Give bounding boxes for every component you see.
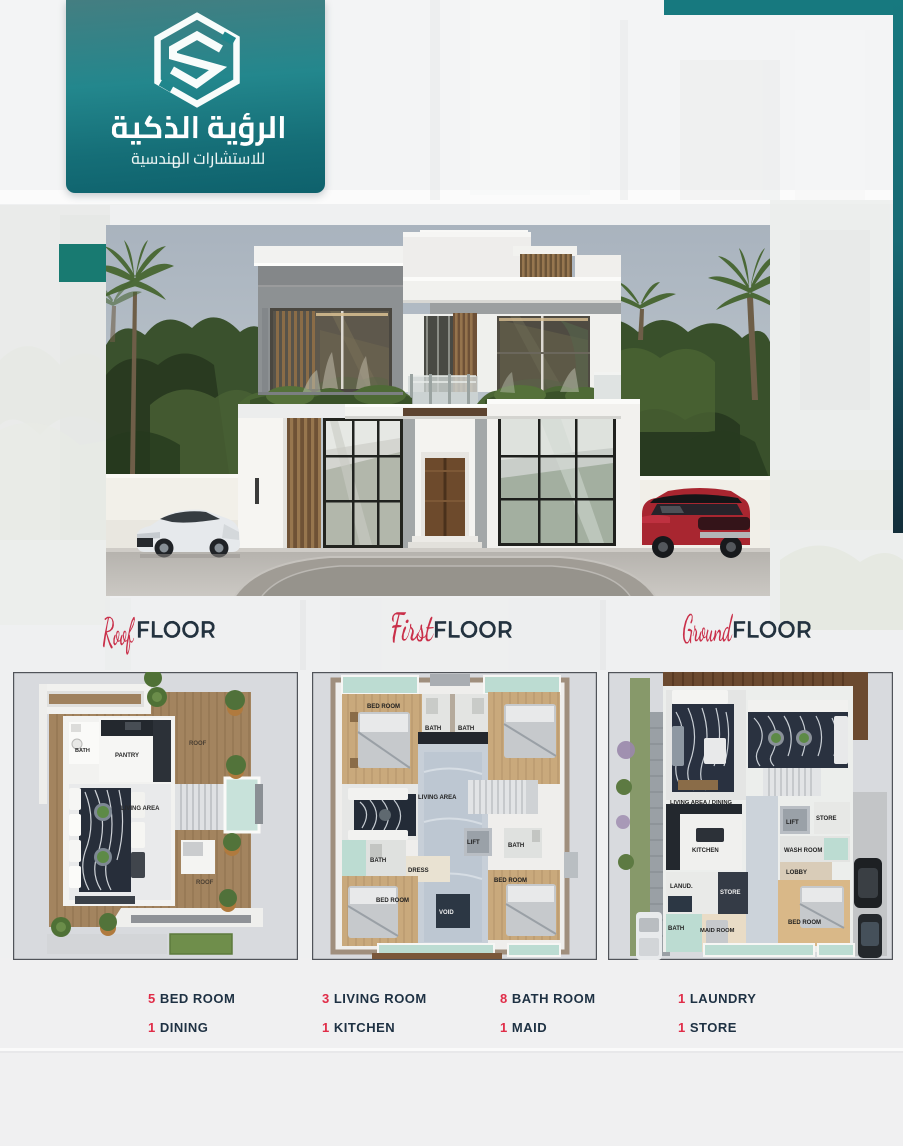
svg-text:BATH: BATH <box>425 726 441 732</box>
svg-text:LANUD.: LANUD. <box>670 884 693 890</box>
svg-text:ROOF: ROOF <box>196 880 214 886</box>
svg-text:STORE: STORE <box>816 816 837 822</box>
svg-text:DRESS: DRESS <box>408 868 429 874</box>
svg-text:BED ROOM: BED ROOM <box>788 920 821 926</box>
svg-text:LIVING AREA: LIVING AREA <box>121 806 160 812</box>
svg-text:BATH: BATH <box>458 726 474 732</box>
svg-text:LIVING AREA: LIVING AREA <box>418 795 457 801</box>
svg-text:BED ROOM: BED ROOM <box>494 878 527 884</box>
svg-text:BED ROOM: BED ROOM <box>376 898 409 904</box>
svg-text:PANTRY: PANTRY <box>115 753 139 759</box>
svg-text:BATH: BATH <box>370 858 386 864</box>
svg-text:BED ROOM: BED ROOM <box>367 704 400 710</box>
svg-text:KITCHEN: KITCHEN <box>692 848 719 854</box>
svg-text:LIFT: LIFT <box>467 840 480 846</box>
svg-text:LIFT: LIFT <box>786 820 799 826</box>
svg-text:BATH: BATH <box>75 748 90 754</box>
svg-text:ROOF: ROOF <box>189 741 207 747</box>
svg-text:BATH: BATH <box>508 843 524 849</box>
svg-text:LOBBY: LOBBY <box>786 870 807 876</box>
svg-text:BATH: BATH <box>668 926 684 932</box>
svg-text:WASH ROOM: WASH ROOM <box>784 848 822 854</box>
svg-text:STORE: STORE <box>720 890 741 896</box>
svg-text:MAID ROOM: MAID ROOM <box>700 928 735 934</box>
svg-text:VOID: VOID <box>439 910 454 916</box>
